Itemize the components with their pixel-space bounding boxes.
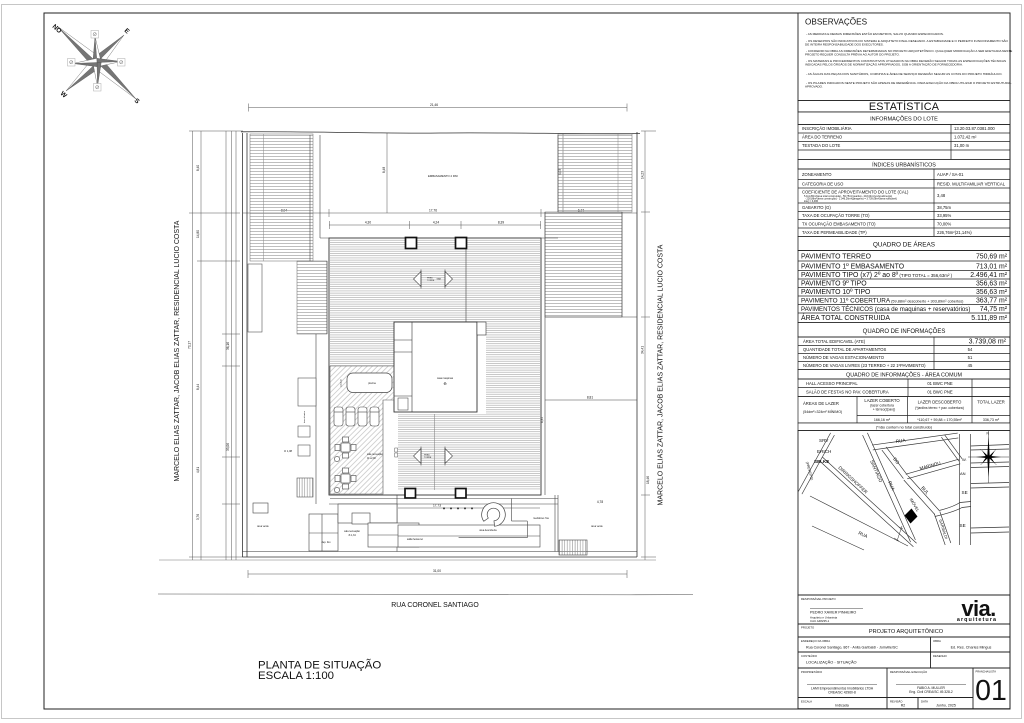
svg-text:PEDRO XAVIER PINHEIRO: PEDRO XAVIER PINHEIRO [810,611,856,615]
svg-text:CONTEÚDO: CONTEÚDO [801,653,818,658]
svg-text:AUAP / SA-01: AUAP / SA-01 [937,172,964,177]
svg-text:LAZER DESCOBERTO: LAZER DESCOBERTO [918,400,963,405]
svg-text:solarium: solarium [340,379,343,387]
svg-text:SRV: SRV [819,438,829,443]
svg-text:ESTATÍSTICA: ESTATÍSTICA [869,100,940,113]
svg-text:sala recreação: sala recreação [344,530,360,533]
svg-text:ÁREA TOTAL CONSTRUIDA: ÁREA TOTAL CONSTRUIDA [801,313,890,322]
svg-text:14,23: 14,23 [641,171,645,179]
svg-text:RESID. MULTIFAMILIAR VERTICAL: RESID. MULTIFAMILIAR VERTICAL [937,182,1006,187]
svg-text:ERICH: ERICH [817,449,831,454]
svg-text:R2: R2 [901,704,906,708]
svg-text:73,17: 73,17 [188,341,192,349]
svg-text:750,69 m²: 750,69 m² [976,254,1008,261]
svg-text:CATEGORIA DE USO: CATEGORIA DE USO [802,182,844,187]
svg-text:QUADRO DE INFORMAÇÕES: QUADRO DE INFORMAÇÕES [863,328,946,335]
svg-text:74,75 m²: 74,75 m² [980,306,1008,313]
svg-text:Eng. Civil CREA/SC 49.328-2: Eng. Civil CREA/SC 49.328-2 [909,690,953,694]
svg-text:NÚMERO DE VAGAS ESTACIONAMENTO: NÚMERO DE VAGAS ESTACIONAMENTO [803,355,885,360]
svg-text:casa maquinas: casa maquinas [437,377,454,380]
svg-text:RUA CORONEL SANTIAGO: RUA CORONEL SANTIAGO [391,602,479,609]
svg-text:54: 54 [968,347,973,352]
svg-text:- AS MEDIDAS E DEMAIS DIMENSÕE: - AS MEDIDAS E DEMAIS DIMENSÕES ESTÃO EM… [806,31,944,36]
svg-text:01: 01 [975,675,1007,707]
svg-text:GABARITO (G): GABARITO (G) [802,205,831,210]
svg-text:45: 45 [968,363,973,368]
svg-text:31,00: 31,00 [433,569,441,573]
svg-text:área verde: área verde [257,525,269,528]
svg-text:AN: AN [960,471,966,476]
svg-text:166,16 m²: 166,16 m² [874,418,891,422]
svg-text:EMBASAMENTO 2 PAV: EMBASAMENTO 2 PAV [428,174,458,178]
svg-text:34,41: 34,41 [641,346,645,354]
svg-text:8,81: 8,81 [587,396,593,400]
svg-text:Indicada: Indicada [835,704,849,708]
svg-text:51: 51 [968,355,973,360]
svg-text:8,40: 8,40 [196,165,200,171]
svg-text:PAVIMENTO 11º COBERTURA (59,88: PAVIMENTO 11º COBERTURA (59,88m² descobe… [801,297,964,304]
svg-text:⟰ 1,34: ⟰ 1,34 [348,534,356,537]
svg-text:356,63 m²: 356,63 m² [976,280,1008,287]
svg-text:33,06: 33,06 [226,443,230,451]
svg-text:lote) = 3,486: lote) = 3,486 [804,200,819,203]
svg-text:QUADRO DE INFORMAÇÕES - ÁREA C: QUADRO DE INFORMAÇÕES - ÁREA COMUM [846,372,962,379]
svg-text:14,80: 14,80 [196,230,200,238]
svg-text:OBSERVAÇÕES: OBSERVAÇÕES [805,17,868,27]
svg-text:MARCELO ELIAS ZATTAR, JACOB EL: MARCELO ELIAS ZATTAR, JACOB ELIAS ZATTAR… [174,220,181,481]
svg-text:PAVIMENTO 1º EMBASAMENTO: PAVIMENTO 1º EMBASAMENTO [801,263,905,270]
svg-text:HALL ACESSO PRINCIPAL: HALL ACESSO PRINCIPAL [806,381,858,386]
svg-text:QUANTIDADE TOTAL DE APARTAMENT: QUANTIDADE TOTAL DE APARTAMENTOS [803,347,887,352]
svg-text:CAU A48235-1: CAU A48235-1 [810,619,830,623]
svg-text:PROJETO REQUER CONSULTA PRÉVIA: PROJETO REQUER CONSULTA PRÉVIA AO AUTOR … [805,52,900,57]
svg-text:Junho, 2025: Junho, 2025 [936,704,956,708]
svg-text:ÁREAS DE LAZER: ÁREAS DE LAZER [803,401,839,406]
svg-text:PRED: PRED [424,455,430,457]
svg-text:1.072,42 m²: 1.072,42 m² [954,135,977,140]
svg-text:21,46: 21,46 [430,103,438,107]
svg-text:DE INTEIRA RESPONSABILIDADE DO: DE INTEIRA RESPONSABILIDADE DOS EXECUTOR… [805,43,884,47]
svg-text:TORRE: TORRE [427,280,435,282]
svg-text:- 226,88m²(área construção) -: - 226,88m²(área construção) - 1.046,26m²… [805,198,897,201]
svg-text:8,48: 8,48 [382,167,386,173]
svg-text:33,95%: 33,95% [937,213,951,218]
svg-text:4,30: 4,30 [365,221,371,225]
svg-text:ENDEREÇO DA OBRA: ENDEREÇO DA OBRA [801,639,830,643]
svg-text:8,39: 8,39 [498,221,504,225]
svg-text:PROPRIETÁRIO: PROPRIETÁRIO [801,670,823,674]
svg-text:⟰ +2,00: ⟰ +2,00 [367,457,376,460]
svg-text:PAVIMENTO TIPO (x7) 2º ao 8º: PAVIMENTO TIPO (x7) 2º ao 8º (TIPO TOTAL… [801,272,953,279]
svg-text:GAB: GAB [437,278,442,281]
svg-text:COEFICIENTE DE APROVEITAMENTO: COEFICIENTE DE APROVEITAMENTO DO LOTE (C… [802,190,909,195]
svg-text:RESPONSÁVEL PROJETO: RESPONSÁVEL PROJETO [801,597,836,601]
svg-text:ESCALA: ESCALA [801,700,812,704]
svg-text:TESTADA DO LOTE: TESTADA DO LOTE [802,143,841,148]
svg-text:363,77 m²: 363,77 m² [976,297,1008,304]
svg-text:área verde: área verde [591,525,603,528]
svg-text:TAXA DE PERMEABILIDADE (TP): TAXA DE PERMEABILIDADE (TP) [802,230,867,235]
svg-text:3,76: 3,76 [196,514,200,520]
svg-text:INDICADAS PELOS ÓRGÃOS DE NORM: INDICADAS PELOS ÓRGÃOS DE NORMATIZAÇÃO A… [805,62,963,67]
svg-text:LAZER COBERTO: LAZER COBERTO [864,398,900,403]
svg-text:Rua Coronel Santiago, 867 - An: Rua Coronel Santiago, 867 - Anita Gariba… [806,646,898,650]
svg-text:- OS PILARES INDICADOS NESTE P: - OS PILARES INDICADOS NESTE PROJETO SÃO… [806,80,1012,85]
svg-text:NÚMERO DE VAGAS LIVRES (23 TE: NÚMERO DE VAGAS LIVRES (23 TERREO + 22 1… [803,363,926,368]
svg-text:4,78: 4,78 [597,500,603,504]
svg-text:SELKE: SELKE [814,459,829,464]
svg-text:PROJETO ARQUITETÔNICO: PROJETO ARQUITETÔNICO [869,628,944,635]
svg-text:- AS ÁGUAS DAS PEÇAS DOS SANIT: - AS ÁGUAS DAS PEÇAS DOS SANITÁRIOS, COZ… [806,71,1003,76]
svg-text:ÍNDICES URBANÍSTICOS: ÍNDICES URBANÍSTICOS [872,162,936,169]
svg-text:SE: SE [962,490,968,495]
svg-text:RESPONSÁVEL EXECUÇÃO: RESPONSÁVEL EXECUÇÃO [890,669,928,674]
svg-text:W.: W. [962,457,967,462]
svg-text:713,01 m²: 713,01 m² [976,263,1008,270]
svg-text:piscina: piscina [368,382,376,385]
svg-text:*110,67 + 59,88 = 170,55m²: *110,67 + 59,88 = 170,55m² [917,418,962,422]
svg-text:18,46: 18,46 [646,476,650,484]
svg-text:LOCALIZAÇÃO - SITUAÇÃO: LOCALIZAÇÃO - SITUAÇÃO [806,660,857,665]
svg-text:Ed. Res. Charles Mingus: Ed. Res. Charles Mingus [951,646,992,650]
svg-text:70,00%: 70,00% [937,222,951,227]
svg-text:PAVIMENTO 9º TIPO: PAVIMENTO 9º TIPO [801,280,867,287]
svg-text:TOTAL LAZER: TOTAL LAZER [977,400,1005,405]
svg-text:PRANCHA/LISTA: PRANCHA/LISTA [976,670,997,674]
svg-text:TORRE: TORRE [424,457,432,459]
svg-text:38,75m: 38,75m [937,205,951,210]
svg-text:dep. lixo: dep. lixo [322,541,332,544]
svg-text:+ térreo(2pav)): + térreo(2pav)) [873,408,896,412]
svg-text:MARCELO ELIAS ZATTAR, JACOB EL: MARCELO ELIAS ZATTAR, JACOB ELIAS ZATTAR… [658,244,665,505]
svg-text:OBRA: OBRA [933,639,941,643]
svg-text:8,44: 8,44 [196,384,200,390]
svg-text:17,76: 17,76 [429,209,437,213]
svg-text:2.496,41 m²: 2.496,41 m² [970,272,1007,279]
svg-text:PROJETO: PROJETO [801,626,815,630]
svg-text:36,16: 36,16 [226,342,230,350]
svg-text:INFORMAÇÕES DO LOTE: INFORMAÇÕES DO LOTE [870,116,938,123]
svg-text:01 BWC PNE: 01 BWC PNE [927,390,953,395]
svg-text:336,73 m²: 336,73 m² [983,418,1000,422]
svg-text:sala recreação: sala recreação [367,453,383,456]
svg-text:salão festas ter: salão festas ter [407,538,423,541]
svg-text:PAVIMENTO TERREO: PAVIMENTO TERREO [801,254,872,261]
svg-text:TX OCUPAÇÃO EMBASAMENTO (TO): TX OCUPAÇÃO EMBASAMENTO (TO) [802,222,876,227]
svg-text:4,24: 4,24 [433,221,439,225]
svg-text:medidores 7as: medidores 7as [533,517,549,520]
svg-text:PAVIMENTOS TÉCNICOS (casa de m: PAVIMENTOS TÉCNICOS (casa de maquinas + … [801,306,970,313]
svg-text:(*jardins térreo + pav. cobert: (*jardins térreo + pav. cobertura) [915,406,964,410]
svg-text:CREA/SC 42960-8: CREA/SC 42960-8 [828,691,856,695]
svg-text:⟰ 1,08: ⟰ 1,08 [284,449,292,453]
svg-text:(54dm²=324m² MÍNIMO): (54dm²=324m² MÍNIMO) [803,410,842,414]
svg-text:APROVADO.: APROVADO. [805,85,823,89]
svg-text:DATA: DATA [921,700,928,704]
svg-text:31,00 m: 31,00 m [954,143,970,148]
svg-text:SALÃO DE FESTAS NO PAV. COBERT: SALÃO DE FESTAS NO PAV. COBERTURA [806,390,889,395]
svg-text:(*não contem no total construí: (*não contem no total construído) [876,426,933,430]
svg-text:QUADRO DE ÁREAS: QUADRO DE ÁREAS [873,240,935,249]
svg-text:área descoberta: área descoberta [479,529,497,532]
svg-text:SE: SE [960,523,966,528]
svg-text:ZONEAMENTO: ZONEAMENTO [802,172,832,177]
svg-text:ÁREA DO TERRENO: ÁREA DO TERRENO [802,135,843,140]
svg-text:3,48: 3,48 [937,193,946,198]
svg-text:ESCALA 1:100: ESCALA 1:100 [258,670,334,682]
svg-text:226,76m²(21,14%): 226,76m²(21,14%) [937,230,972,235]
svg-text:área técnica: área técnica [303,410,306,423]
svg-text:arquitetura: arquitetura [957,617,997,623]
svg-text:DESENHO: DESENHO [933,654,948,658]
svg-text:4,81: 4,81 [196,467,200,473]
svg-text:5.111,89 m²: 5.111,89 m² [971,315,1007,322]
svg-text:13.20.03.87.0381.000: 13.20.03.87.0381.000 [954,126,995,131]
svg-text:356,63 m²: 356,63 m² [976,289,1008,296]
svg-text:PRED: PRED [427,278,433,280]
svg-text:PAVIMENTO 10º TIPO: PAVIMENTO 10º TIPO [801,289,871,296]
svg-text:TAXA DE OCUPAÇÃO TORRE (TO): TAXA DE OCUPAÇÃO TORRE (TO) [802,213,870,218]
svg-text:3.739,08 m²: 3.739,08 m² [969,339,1007,346]
svg-text:INSCRIÇÃO IMOBILIÁRIA: INSCRIÇÃO IMOBILIÁRIA [802,126,852,131]
svg-text:ÁREA TOTAL EDIFICAVEL (ATE): ÁREA TOTAL EDIFICAVEL (ATE) [803,339,866,344]
svg-text:01 BWC PNE: 01 BWC PNE [927,381,953,386]
